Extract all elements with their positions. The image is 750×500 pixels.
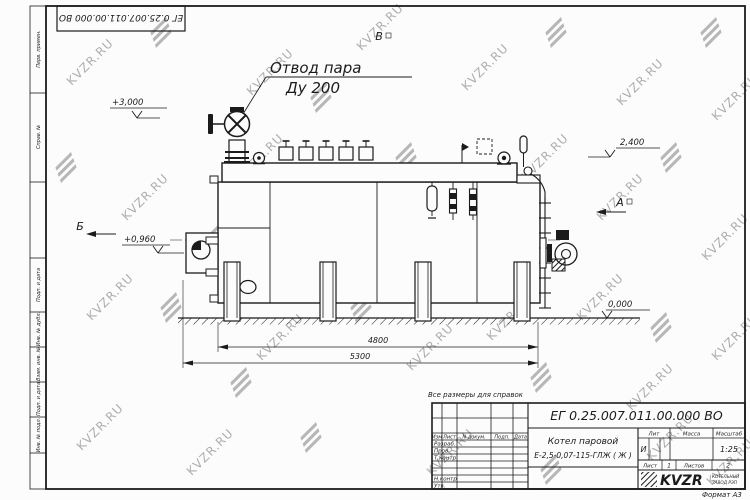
row-prov: Пров. (434, 449, 450, 455)
elevation-mark-burner: +0,960 (122, 235, 184, 253)
col-izm: Изм (432, 435, 442, 441)
boiler-view (170, 107, 640, 325)
elevation-top-value: +3,000 (112, 98, 143, 108)
elevation-mark-ground: 0,000 (602, 300, 650, 318)
elevation-mark-rear: 2,400 (588, 138, 660, 157)
col-data: Дата (513, 435, 527, 441)
stamp-podp-data-2: Подп. и дата (36, 382, 42, 416)
stamp-podp-data-1: Подп. и дата (36, 268, 42, 302)
steam-outlet-callout: Отвод пара Ду 200 (243, 59, 412, 114)
boiler-body (218, 163, 540, 303)
lit-value: И (641, 445, 647, 454)
sheet-value: 1 (667, 463, 671, 470)
reference-note: Все размеры для справок (428, 391, 524, 399)
lit-label: Лит (648, 432, 661, 438)
section-mark-a: А (596, 196, 632, 215)
elevation-mark-top: +3,000 (110, 98, 167, 118)
stamp-vzam-inv: Взам. инв. № (36, 347, 42, 381)
section-b-letter: Б (76, 220, 84, 233)
elevation-ground-value: 0,000 (608, 300, 632, 310)
section-v-letter: В (375, 30, 383, 43)
product-name-line2: Е-2,5-0,07-115-ГЛЖ ( Ж ) (534, 451, 632, 460)
sheets-label: Листов (683, 464, 705, 470)
format-note: Формат А3 (702, 491, 742, 499)
elevation-burner-value: +0,960 (124, 235, 155, 245)
col-list: Лист (442, 435, 457, 441)
col-ndoc: N докум. (462, 435, 485, 441)
row-utv: Утв. (434, 484, 446, 490)
stamp-sprav-no: Справ. № (36, 125, 42, 149)
boiler-drawing-sheet: Перв. примен. Справ. № Подп. и дата Инв.… (0, 0, 750, 500)
col-podp: Подп. (494, 435, 509, 441)
dimension-4800: 4800 (218, 322, 538, 368)
steam-outlet-label-line2: Ду 200 (285, 79, 340, 97)
section-mark-v: В (375, 30, 391, 43)
company-sub1: КОТЕЛЬНЫЙ (712, 474, 740, 479)
title-block: Все размеры для справок (428, 391, 745, 490)
stamp-perv-primen: Перв. примен. (36, 30, 42, 68)
scale-value: 1:25 (720, 445, 738, 454)
section-mark-b: Б (76, 220, 116, 237)
drawing-sheet: KVZR.RUKVZR.RUKVZR.RUKVZR.RUKVZR.RUKVZR.… (0, 0, 750, 500)
manhole (240, 281, 256, 294)
elevation-rear-value: 2,400 (620, 138, 644, 148)
steam-outlet-valve (208, 107, 250, 163)
ground-hatch (178, 319, 640, 325)
row-nkontr: Н.контр (434, 477, 457, 483)
steam-outlet-label-line1: Отвод пара (270, 59, 361, 77)
stamp-inv-dubl: Инв. № дубл. (36, 312, 42, 346)
sheets-value: 2 (726, 463, 730, 470)
massa-label: Масса (683, 432, 701, 438)
row-razrab: Разраб. (434, 442, 456, 448)
top-stamp-number: ЕГ 0.25.007.011.00.000 ВО (59, 12, 183, 22)
section-a-letter: А (615, 196, 624, 209)
sheet-label: Лист (642, 464, 658, 470)
safety-hatches (279, 141, 373, 160)
dimension-4800-value: 4800 (368, 336, 388, 345)
product-name-line1: Котел паровой (548, 437, 619, 447)
kvzr-logo-text: KVZR (660, 473, 703, 489)
sight-glass (253, 153, 265, 164)
scale-label: Масштаб (716, 432, 743, 438)
kvzr-logo-mark (641, 472, 657, 487)
company-sub2: ЗАВОД РЭП (712, 480, 738, 485)
doc-number: ЕГ 0.25.007.011.00.000 ВО (550, 408, 723, 423)
stamp-inv-podl: Инв. № подл. (36, 418, 42, 453)
dimension-5300-value: 5300 (350, 352, 370, 361)
row-tkontr: Т.контр (434, 456, 457, 462)
valve-handwheel (208, 114, 213, 134)
